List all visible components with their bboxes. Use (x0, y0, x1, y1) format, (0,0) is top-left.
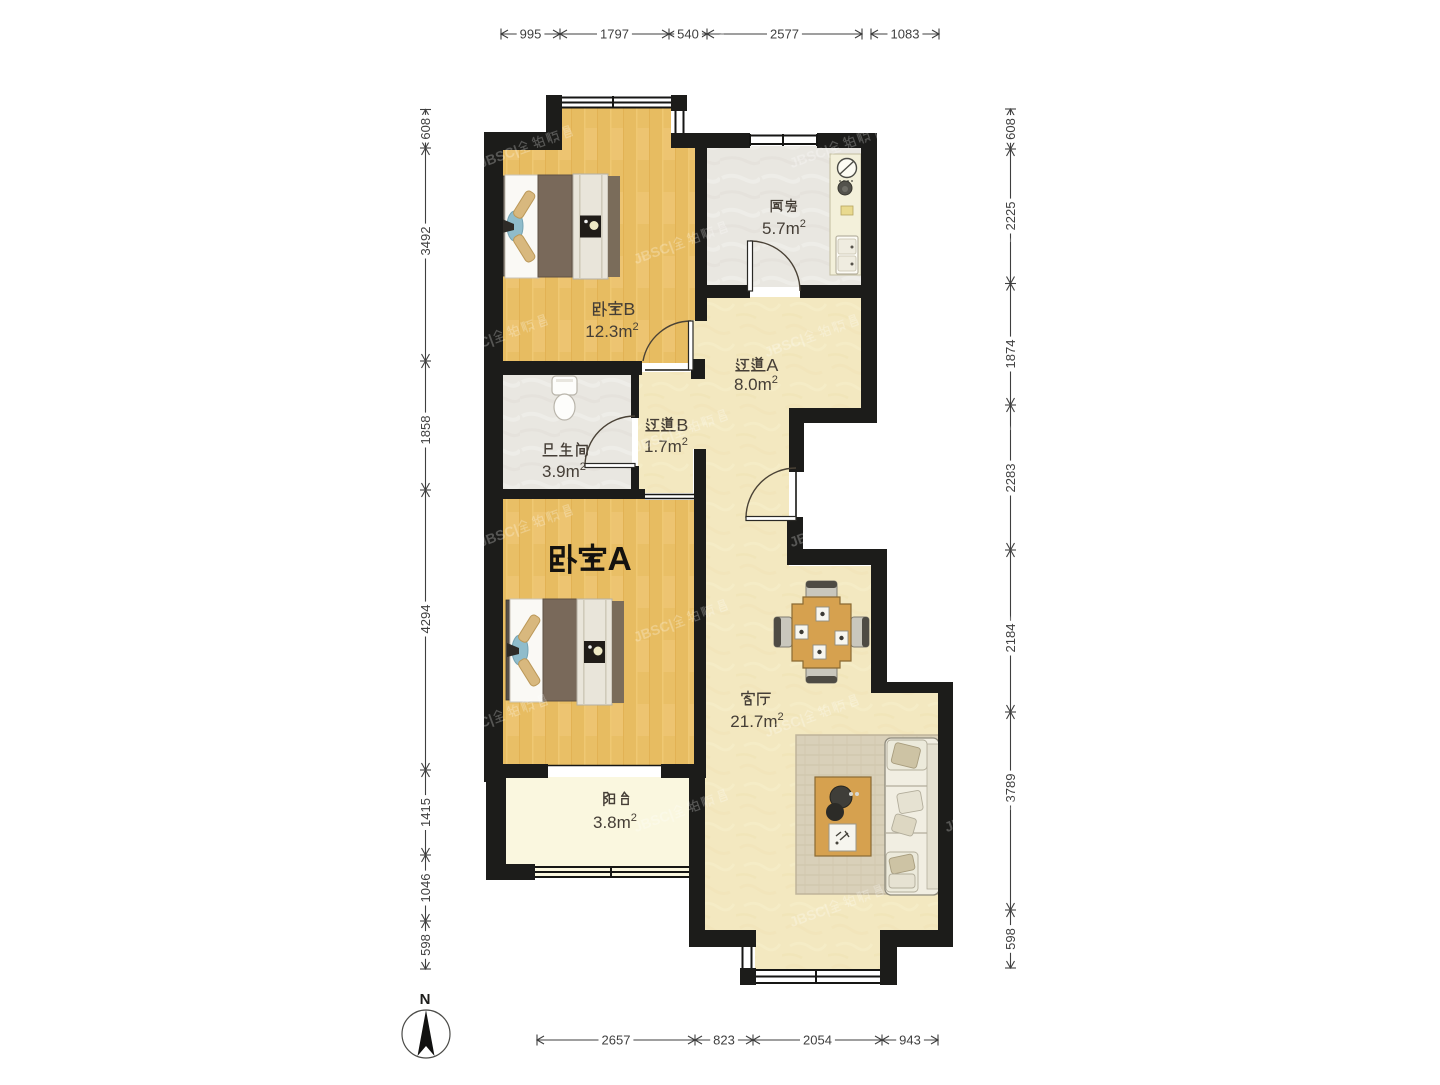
svg-text:2184: 2184 (1003, 624, 1018, 653)
svg-text:2: 2 (800, 218, 806, 230)
svg-text:3789: 3789 (1003, 774, 1018, 803)
svg-text:2283: 2283 (1003, 464, 1018, 493)
svg-text:2225: 2225 (1003, 202, 1018, 231)
svg-text:5.7m: 5.7m (762, 219, 800, 238)
svg-text:1858: 1858 (418, 416, 433, 445)
svg-text:1415: 1415 (418, 798, 433, 827)
svg-text:N: N (420, 991, 431, 1008)
svg-text:4294: 4294 (418, 605, 433, 634)
svg-text:8.0m: 8.0m (734, 375, 772, 394)
svg-text:2: 2 (633, 321, 639, 333)
svg-text:2657: 2657 (602, 1033, 631, 1048)
svg-text:608: 608 (418, 118, 433, 140)
svg-text:608: 608 (1003, 118, 1018, 140)
svg-text:540: 540 (677, 27, 699, 42)
svg-text:3.9m: 3.9m (542, 462, 580, 481)
svg-text:A: A (608, 541, 632, 578)
svg-text:598: 598 (1003, 928, 1018, 950)
svg-text:3492: 3492 (418, 227, 433, 256)
svg-text:2: 2 (580, 461, 586, 473)
svg-text:2: 2 (682, 436, 688, 448)
svg-text:3.8m: 3.8m (593, 813, 631, 832)
svg-text:1797: 1797 (600, 27, 629, 42)
svg-text:1083: 1083 (891, 27, 920, 42)
svg-text:995: 995 (520, 27, 542, 42)
svg-text:2577: 2577 (770, 27, 799, 42)
svg-text:2054: 2054 (803, 1033, 832, 1048)
svg-text:2: 2 (772, 374, 778, 386)
svg-text:12.3m: 12.3m (585, 322, 632, 341)
svg-text:B: B (623, 299, 635, 319)
svg-text:1046: 1046 (418, 874, 433, 903)
svg-text:1874: 1874 (1003, 340, 1018, 369)
svg-text:943: 943 (899, 1033, 921, 1048)
svg-text:598: 598 (418, 934, 433, 956)
svg-text:823: 823 (713, 1033, 735, 1048)
